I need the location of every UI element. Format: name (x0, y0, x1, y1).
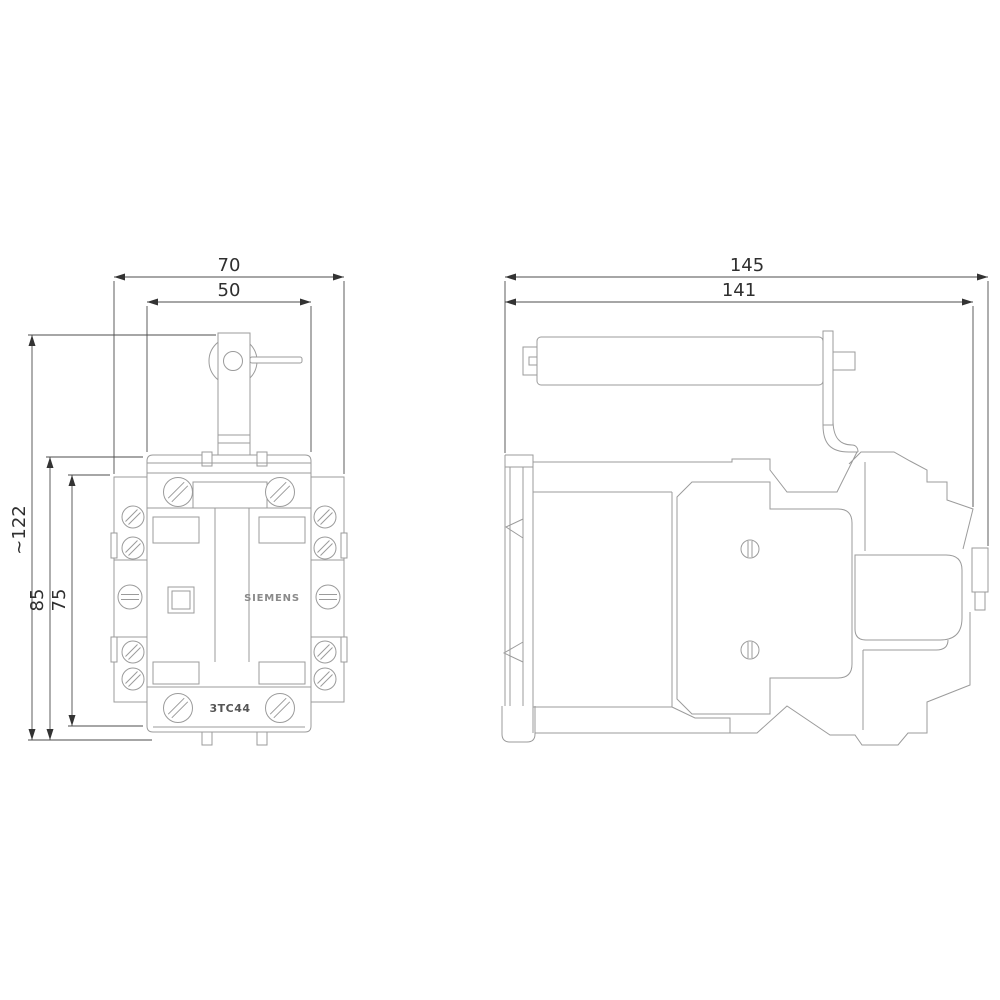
right-lower-clip (341, 637, 347, 662)
drawing-canvas: 70 50 ~122 85 75 (0, 0, 1000, 1000)
screw-right-col-mid (316, 585, 340, 609)
bottom-latch-right (257, 732, 267, 745)
front-clip (972, 548, 988, 610)
dim-label-body-height: 85 (27, 589, 48, 612)
left-lower-clip (111, 637, 117, 662)
terminal-block-lip (863, 640, 948, 650)
screw-left-col-mid (118, 585, 142, 609)
top-center-window (193, 482, 267, 508)
terminal-window-bottom-left (153, 662, 199, 684)
screw-bottom-left (164, 694, 193, 723)
screw-left-col-2 (122, 537, 144, 559)
dim-label-overall-depth: 145 (730, 255, 764, 276)
screw-bottom-right (266, 694, 295, 723)
screw-right-col-1 (314, 506, 336, 528)
top-latch-left (202, 452, 212, 466)
front-view: 70 50 ~122 85 75 (9, 255, 347, 745)
contact-carrier-block (677, 482, 852, 714)
screw-left-col-3 (122, 641, 144, 663)
screw-right-col-4 (314, 668, 336, 690)
dim-label-inner-height: 75 (49, 589, 70, 612)
front-terminal-block (855, 555, 962, 640)
arc-chute-plate (823, 331, 833, 425)
dim-label-cover-width: 50 (218, 280, 241, 301)
coil-window-inner (172, 591, 190, 609)
model-label: 3TC44 (209, 702, 250, 715)
left-upper-clip (111, 533, 117, 558)
rail-mount-plate (502, 455, 535, 742)
screw-right-col-2 (314, 537, 336, 559)
screw-top-right (266, 478, 295, 507)
lever-bar-end-cap (523, 347, 537, 375)
lever-bar (537, 337, 823, 385)
terminal-window-top-left (153, 517, 199, 543)
dim-label-body-depth: 141 (722, 280, 756, 301)
screw-left-col-4 (122, 668, 144, 690)
top-latch-right (257, 452, 267, 466)
carrier-screw-top (741, 540, 759, 558)
mounting-hole (224, 352, 243, 371)
side-view: 145 141 (502, 255, 988, 745)
bottom-latch-left (202, 732, 212, 745)
carrier-screw-bottom (741, 641, 759, 659)
screw-left-col-1 (122, 506, 144, 528)
brand-label: SIEMENS (244, 593, 300, 604)
dim-label-outer-width: 70 (218, 255, 241, 276)
terminal-window-bottom-right (259, 662, 305, 684)
lug-pin (250, 357, 302, 363)
dim-label-overall-height: ~122 (9, 505, 30, 554)
terminal-window-top-right (259, 517, 305, 543)
screw-top-left (164, 478, 193, 507)
technical-drawing: 70 50 ~122 85 75 (0, 0, 1000, 1000)
right-upper-clip (341, 533, 347, 558)
arc-chute-tab (833, 352, 855, 370)
screw-right-col-3 (314, 641, 336, 663)
